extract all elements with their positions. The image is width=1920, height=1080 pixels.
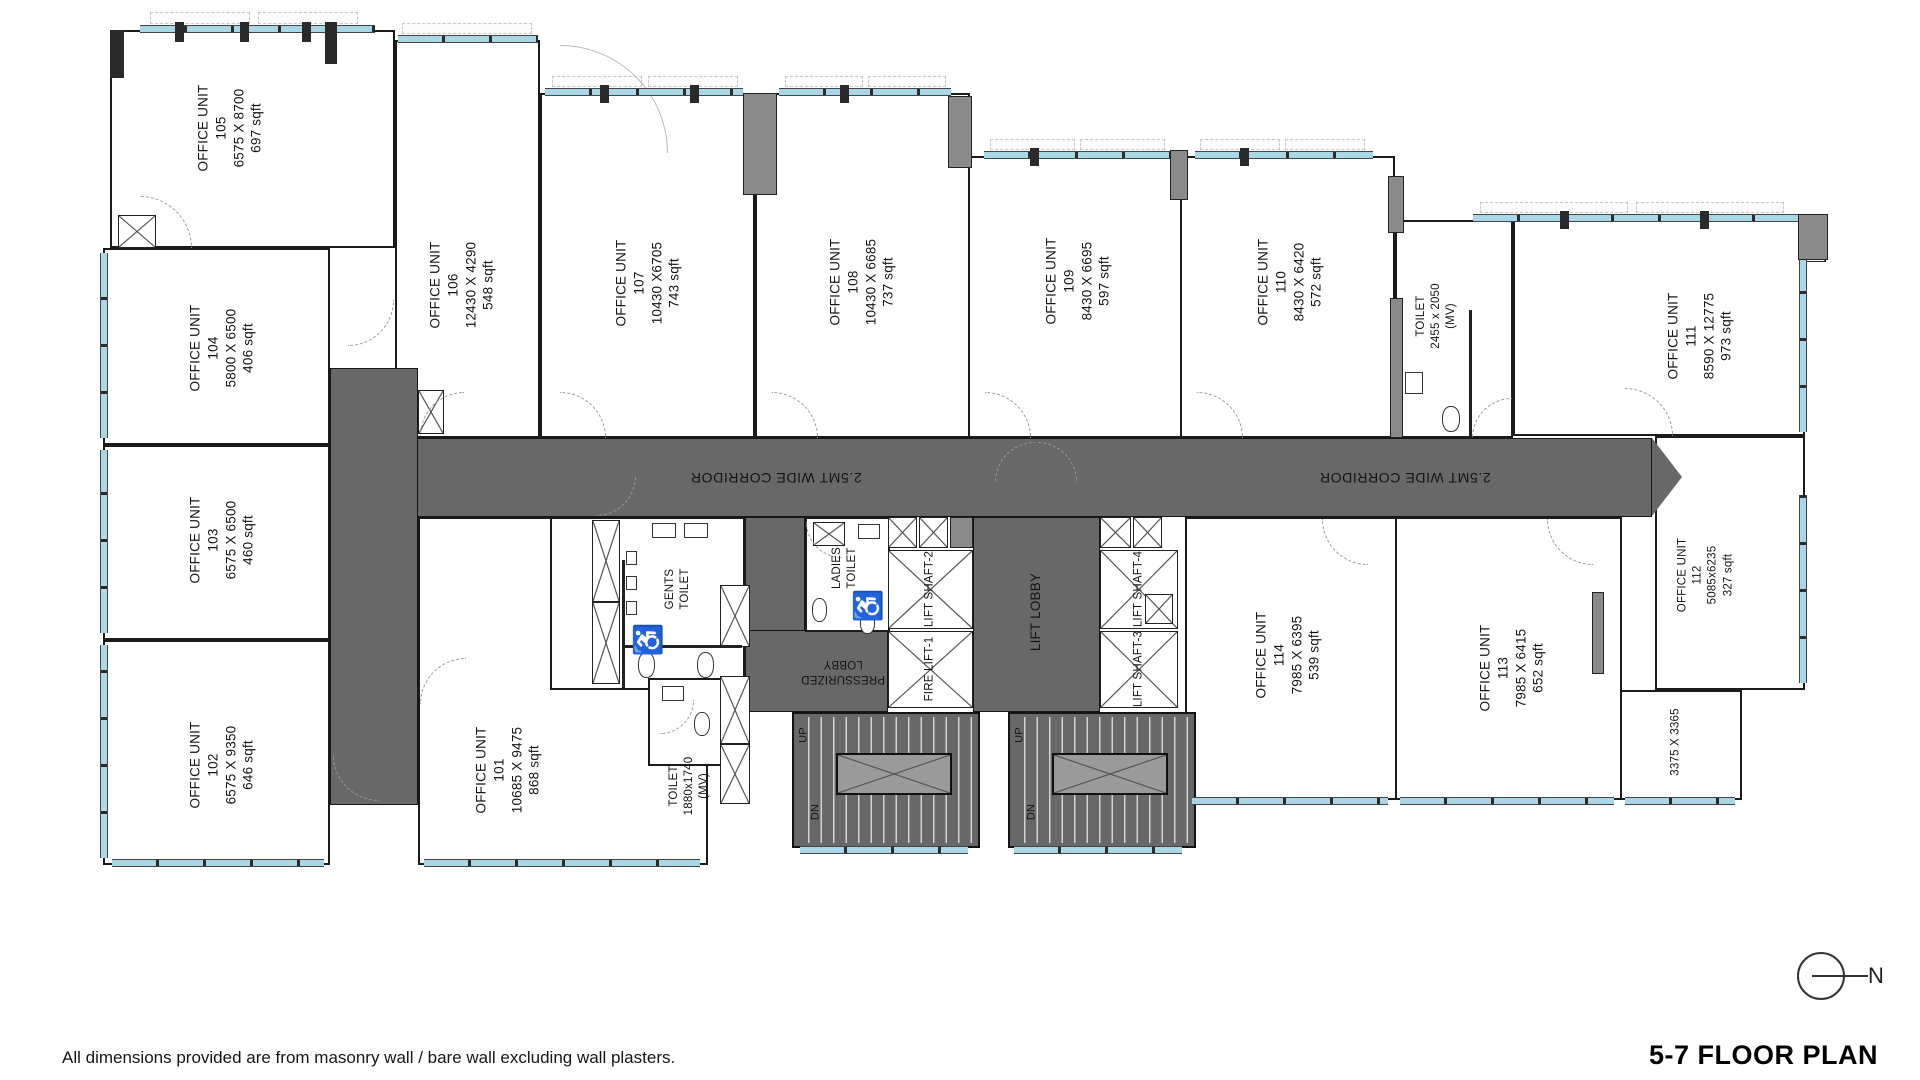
column xyxy=(1592,592,1604,674)
unit-dims: 6575 X 6500 xyxy=(222,497,240,584)
label-lift-shaft-4: LIFT SHAFT-4 xyxy=(1131,551,1146,627)
partition-wall xyxy=(1469,310,1472,436)
unit-area: 548 sqft xyxy=(480,242,498,329)
unit-dims: 10685 X 9475 xyxy=(508,727,526,814)
corridor-core-finger xyxy=(745,517,805,637)
wall-block xyxy=(1700,211,1709,229)
wall-block xyxy=(1030,148,1039,166)
sink xyxy=(662,686,684,701)
label-fire-lift-1: FIRE LIFT-1 xyxy=(922,637,937,702)
column xyxy=(1170,150,1188,200)
label-lift-lobby: LIFT LOBBY xyxy=(1027,573,1045,651)
unit-number: 104 xyxy=(204,305,222,392)
unit-number: 112 xyxy=(1691,538,1706,612)
label-office-114: OFFICE UNIT 114 7985 X 6395 539 sqft xyxy=(1252,612,1323,699)
unit-dims: 8430 X 6695 xyxy=(1078,238,1096,325)
unit-dims: 5085x6235 xyxy=(1706,538,1721,612)
cross-brace-icon xyxy=(889,518,916,547)
column xyxy=(950,517,973,548)
cross-brace-icon xyxy=(1054,755,1166,793)
label-lift-shaft-2: LIFT SHAFT-2 xyxy=(922,551,937,627)
window-band xyxy=(1473,214,1801,222)
label-toilet-bottom: TOILET 1880x1740 (MV) xyxy=(667,757,713,816)
duct-shaft xyxy=(720,585,750,647)
window-band xyxy=(100,253,108,438)
unit-area: 597 sqft xyxy=(1096,238,1114,325)
unit-area: 539 sqft xyxy=(1306,612,1324,699)
unit-number: 103 xyxy=(204,497,222,584)
drawing-title: 5-7 FLOOR PLAN xyxy=(1649,1040,1878,1071)
wall-block xyxy=(1560,211,1569,229)
room-title: PRESSURIZED xyxy=(801,671,885,686)
unit-title: OFFICE UNIT xyxy=(472,727,490,814)
label-stair-up: UP xyxy=(797,727,812,743)
urinal xyxy=(626,551,637,565)
sink xyxy=(1405,372,1423,394)
sink xyxy=(858,524,880,539)
room-note: (MV) xyxy=(698,757,713,816)
unit-area: 327 sqft xyxy=(1721,538,1736,612)
unit-number: 108 xyxy=(844,239,862,326)
wall-block xyxy=(1240,148,1249,166)
unit-number: 107 xyxy=(630,240,648,327)
window-band xyxy=(1625,797,1735,805)
label-office-103: OFFICE UNIT 103 6575 X 6500 460 sqft xyxy=(186,497,257,584)
cross-brace-icon xyxy=(920,518,947,547)
room-title: LADIES xyxy=(830,547,845,589)
unit-area: 743 sqft xyxy=(666,240,684,327)
wall-block xyxy=(840,85,849,103)
north-arrow-line xyxy=(1812,975,1868,977)
label-office-113: OFFICE UNIT 113 7985 X 6415 652 sqft xyxy=(1476,625,1547,712)
unit-title: OFFICE UNIT xyxy=(186,497,204,584)
unit-dims: 8430 X 6420 xyxy=(1290,239,1308,326)
unit-number: 102 xyxy=(204,722,222,809)
room-title: GENTS xyxy=(663,568,678,609)
window-band xyxy=(1799,495,1807,683)
label-office-109: OFFICE UNIT 109 8430 X 6695 597 sqft xyxy=(1042,238,1113,325)
toilet-fixture xyxy=(812,598,827,622)
label-stair-dn: DN xyxy=(1025,804,1040,820)
unit-dims: 6575 X 8700 xyxy=(230,85,248,172)
duct-shaft xyxy=(888,517,917,548)
room-title: TOILET xyxy=(1414,283,1429,349)
label-office-102: OFFICE UNIT 102 6575 X 9350 646 sqft xyxy=(186,722,257,809)
unit-number: 111 xyxy=(1682,293,1700,380)
window-sill xyxy=(1080,139,1165,150)
window-band xyxy=(984,151,1172,159)
duct-shaft xyxy=(1133,517,1162,548)
unit-dims: 10430 X 6685 xyxy=(862,239,880,326)
unit-title: OFFICE UNIT xyxy=(194,85,212,172)
urinal xyxy=(626,576,637,590)
unit-area: 646 sqft xyxy=(240,722,258,809)
unit-title: OFFICE UNIT xyxy=(1476,625,1494,712)
corridor-end-arrow xyxy=(1652,438,1682,516)
column xyxy=(1798,214,1828,260)
sink xyxy=(652,523,676,538)
cross-brace-icon xyxy=(593,521,619,601)
unit-area: 460 sqft xyxy=(240,497,258,584)
toilet-fixture xyxy=(1442,406,1460,432)
sink xyxy=(684,523,708,538)
unit-dims: 7985 X 6395 xyxy=(1288,612,1306,699)
window-sill xyxy=(785,76,863,87)
label-stair-dn: DN xyxy=(809,804,824,820)
cross-brace-icon xyxy=(593,603,619,683)
cross-brace-icon xyxy=(721,745,749,803)
unit-title: OFFICE UNIT xyxy=(426,242,444,329)
window-sill xyxy=(402,23,532,34)
window-band xyxy=(779,88,951,96)
door-arc xyxy=(348,300,394,346)
window-band xyxy=(545,88,743,96)
unit-number: 101 xyxy=(490,727,508,814)
wall-block xyxy=(240,22,249,42)
label-office-101: OFFICE UNIT 101 10685 X 9475 868 sqft xyxy=(472,727,543,814)
cross-brace-icon xyxy=(1101,518,1130,547)
stair-landing xyxy=(836,753,952,795)
window-band xyxy=(1400,797,1614,805)
column xyxy=(1390,298,1403,438)
window-sill xyxy=(1285,139,1365,150)
unit-area: 737 sqft xyxy=(880,239,898,326)
label-office-107: OFFICE UNIT 107 10430 X6705 743 sqft xyxy=(612,240,683,327)
duct-shaft xyxy=(720,676,750,744)
window-sill xyxy=(1480,202,1628,213)
wall-block xyxy=(325,22,337,64)
label-office-110: OFFICE UNIT 110 8430 X 6420 572 sqft xyxy=(1254,239,1325,326)
cross-brace-icon xyxy=(1146,595,1172,623)
label-stair-up: UP xyxy=(1013,727,1028,743)
unit-dims: 10430 X6705 xyxy=(648,240,666,327)
label-store-3375: 3375 X 3365 xyxy=(1668,708,1683,775)
room-dims: 1880x1740 xyxy=(682,757,697,816)
room-note: (MV) xyxy=(1445,283,1460,349)
wheelchair-accessible-icon: ♿ xyxy=(852,589,884,623)
window-band xyxy=(1014,846,1182,854)
label-pressurized-lobby: PRESSURIZED LOBBY xyxy=(801,656,885,686)
urinal xyxy=(626,601,637,615)
partition-wall xyxy=(622,560,625,688)
room-title: TOILET xyxy=(678,568,693,609)
room-title: TOILET xyxy=(845,547,860,589)
window-sill xyxy=(150,12,250,24)
duct-shaft xyxy=(1145,594,1173,624)
unit-number: 109 xyxy=(1060,238,1078,325)
column xyxy=(948,96,972,168)
unit-area: 406 sqft xyxy=(240,305,258,392)
window-band xyxy=(424,859,700,867)
duct-shaft xyxy=(1100,517,1131,548)
unit-dims: 12430 X 4290 xyxy=(462,242,480,329)
wall-block xyxy=(600,85,609,103)
unit-title: OFFICE UNIT xyxy=(612,240,630,327)
unit-dims: 5800 X 6500 xyxy=(222,305,240,392)
wall-block xyxy=(110,30,124,78)
corridor-left-stub xyxy=(330,368,418,805)
duct-shaft xyxy=(592,520,620,602)
duct-shaft xyxy=(720,744,750,804)
label-corridor-left: 2.5MT WIDE CORRIDOR xyxy=(690,469,861,487)
window-band xyxy=(100,645,108,858)
window-band xyxy=(1195,151,1373,159)
label-office-104: OFFICE UNIT 104 5800 X 6500 406 sqft xyxy=(186,305,257,392)
unit-title: OFFICE UNIT xyxy=(826,239,844,326)
unit-title: OFFICE UNIT xyxy=(186,722,204,809)
room-title: TOILET xyxy=(667,757,682,816)
unit-title: OFFICE UNIT xyxy=(1676,538,1691,612)
wall-block xyxy=(690,85,699,103)
cross-brace-icon xyxy=(838,755,950,793)
unit-title: OFFICE UNIT xyxy=(186,305,204,392)
unit-area: 572 sqft xyxy=(1308,239,1326,326)
duct-shaft xyxy=(592,602,620,684)
cross-brace-icon xyxy=(1134,518,1161,547)
north-label: N xyxy=(1868,963,1884,989)
label-toilet-top: TOILET 2455 x 2050 (MV) xyxy=(1414,283,1460,349)
label-gents-toilet: GENTS TOILET xyxy=(663,568,693,609)
unit-dims: 7985 X 6415 xyxy=(1512,625,1530,712)
label-lift-shaft-3: LIFT SHAFT-3 xyxy=(1131,631,1146,707)
label-corridor-right: 2.5MT WIDE CORRIDOR xyxy=(1319,469,1490,487)
unit-title: OFFICE UNIT xyxy=(1252,612,1270,699)
cross-brace-icon xyxy=(721,677,749,743)
unit-number: 106 xyxy=(444,242,462,329)
room-title: LOBBY xyxy=(801,656,885,671)
unit-number: 110 xyxy=(1272,239,1290,326)
window-band xyxy=(100,450,108,633)
cross-brace-icon xyxy=(721,586,749,646)
label-office-112: OFFICE UNIT 112 5085x6235 327 sqft xyxy=(1676,538,1737,612)
unit-area: 868 sqft xyxy=(526,727,544,814)
unit-number: 113 xyxy=(1494,625,1512,712)
unit-title: OFFICE UNIT xyxy=(1664,293,1682,380)
unit-area: 652 sqft xyxy=(1530,625,1548,712)
window-sill xyxy=(868,76,946,87)
unit-dims: 6575 X 9350 xyxy=(222,722,240,809)
window-sill xyxy=(1636,202,1784,213)
room-dims: 2455 x 2050 xyxy=(1429,283,1444,349)
stair-landing xyxy=(1052,753,1168,795)
window-band xyxy=(800,846,968,854)
unit-title: OFFICE UNIT xyxy=(1254,239,1272,326)
wall-block xyxy=(302,22,311,42)
unit-number: 105 xyxy=(212,85,230,172)
unit-title: OFFICE UNIT xyxy=(1042,238,1060,325)
unit-number: 114 xyxy=(1270,612,1288,699)
window-band xyxy=(1799,252,1807,432)
footnote-text: All dimensions provided are from masonry… xyxy=(62,1048,675,1068)
curtain-curve xyxy=(560,45,668,153)
duct-shaft xyxy=(919,517,948,548)
wheelchair-accessible-icon: ♿ xyxy=(632,623,664,657)
label-ladies-toilet: LADIES TOILET xyxy=(830,547,860,589)
unit-area: 697 sqft xyxy=(248,85,266,172)
window-band xyxy=(1192,797,1388,805)
label-office-108: OFFICE UNIT 108 10430 X 6685 737 sqft xyxy=(826,239,897,326)
floor-plan-canvas: ♿ ♿ OFFICE UNIT 105 6575 X 8700 697 sqft… xyxy=(0,0,1920,1080)
label-office-106: OFFICE UNIT 106 12430 X 4290 548 sqft xyxy=(426,242,497,329)
wall-block xyxy=(175,22,184,42)
unit-dims: 8590 X 12775 xyxy=(1700,293,1718,380)
column xyxy=(1388,176,1404,233)
window-band xyxy=(398,35,538,43)
label-office-111: OFFICE UNIT 111 8590 X 12775 973 sqft xyxy=(1664,293,1735,380)
unit-area: 973 sqft xyxy=(1718,293,1736,380)
toilet-fixture xyxy=(697,652,714,678)
column xyxy=(743,93,777,195)
toilet-fixture xyxy=(694,712,710,736)
window-band xyxy=(112,859,324,867)
label-office-105: OFFICE UNIT 105 6575 X 8700 697 sqft xyxy=(194,85,265,172)
